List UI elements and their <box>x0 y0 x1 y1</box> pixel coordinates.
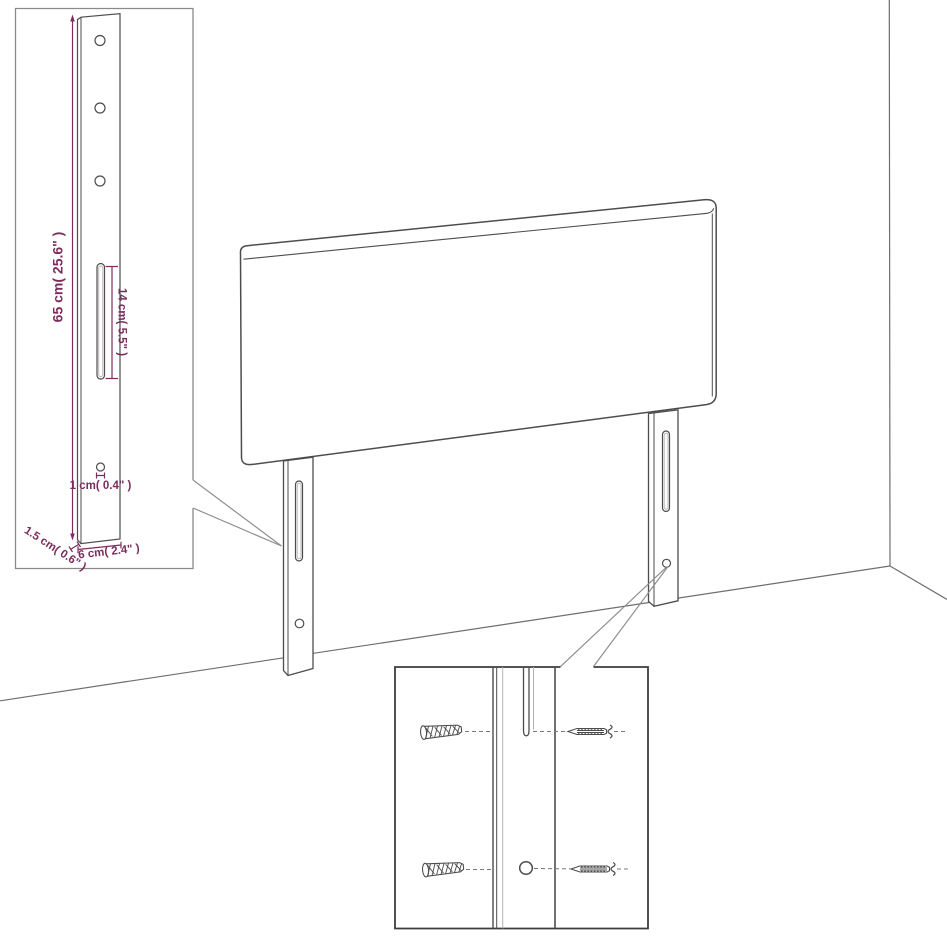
width-dimension-label: 6 cm( 2.4" ) <box>78 543 141 562</box>
closeup-slot <box>524 667 530 736</box>
callout-line <box>594 567 669 667</box>
dimension-arrow-down <box>70 534 75 541</box>
headboard-panel <box>240 200 716 465</box>
callout-wedge-left <box>193 480 282 546</box>
callout-wedge-right <box>561 567 669 667</box>
dimension-arrow-up <box>70 15 75 22</box>
leg-detail-inset: 65 cm( 25.6" ) 14 cm( 5.5" ) 1 cm( 0.4" … <box>16 9 194 574</box>
floor-line-left <box>0 566 890 701</box>
height-dimension-label: 65 cm( 25.6" ) <box>50 232 66 323</box>
floor-line-right <box>890 566 947 600</box>
hole-dimension-label: 1 cm( 0.4" ) <box>70 480 132 492</box>
wall-plug-icon <box>422 860 464 877</box>
headboard-outline <box>240 200 716 465</box>
bracket-hole-top-1 <box>95 36 105 46</box>
bracket-slot <box>97 264 105 380</box>
closeup-screw-hole <box>520 862 533 875</box>
fastener-inset-border <box>395 667 648 929</box>
screw-icon <box>568 725 628 738</box>
headboard-right-leg <box>649 410 679 607</box>
bracket-hole-top-3 <box>95 176 105 186</box>
left-leg-screw-hole <box>295 619 304 628</box>
fastener-detail-inset <box>395 667 648 929</box>
headboard-left-leg <box>284 457 314 675</box>
bracket-hole-top-2 <box>95 103 105 113</box>
leg-closeup-strip <box>493 667 555 929</box>
diagram-canvas: 65 cm( 25.6" ) 14 cm( 5.5" ) 1 cm( 0.4" … <box>0 0 947 947</box>
screw-icon <box>571 863 630 876</box>
right-leg-screw-hole <box>663 559 671 567</box>
callout-line <box>561 568 667 667</box>
wall-plug-icon <box>420 723 462 740</box>
wall-corner-line <box>889 0 890 566</box>
callout-line <box>193 480 282 546</box>
headboard-diagram: 65 cm( 25.6" ) 14 cm( 5.5" ) 1 cm( 0.4" … <box>0 0 947 947</box>
slot-dimension-label: 14 cm( 5.5" ) <box>116 288 128 356</box>
bracket-small-hole <box>97 463 105 471</box>
